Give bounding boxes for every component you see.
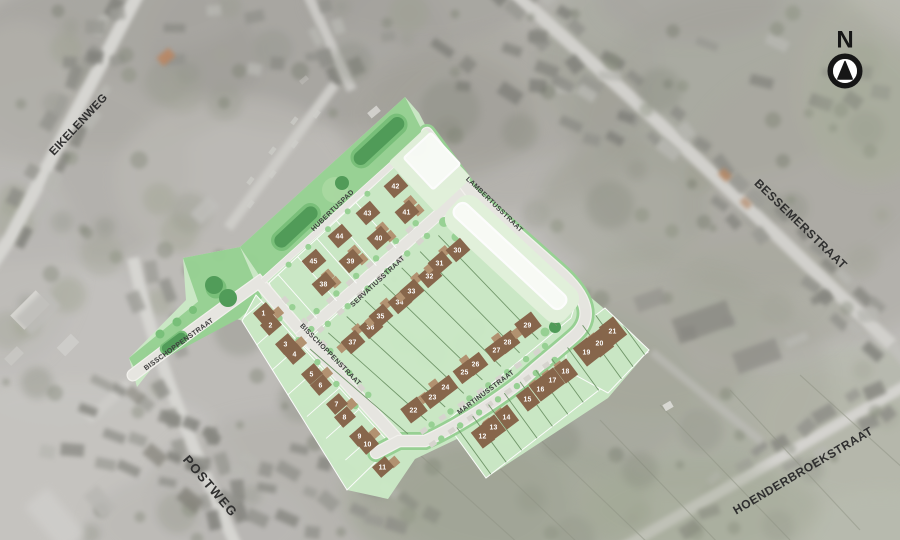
svg-text:24: 24: [441, 385, 449, 392]
svg-text:14: 14: [502, 415, 510, 422]
svg-text:40: 40: [374, 236, 382, 243]
svg-text:29: 29: [523, 323, 531, 330]
svg-text:18: 18: [561, 369, 569, 376]
svg-text:17: 17: [548, 378, 556, 385]
svg-text:22: 22: [409, 408, 417, 415]
svg-text:13: 13: [489, 425, 497, 432]
svg-text:9: 9: [357, 434, 361, 441]
svg-text:20: 20: [595, 341, 603, 348]
svg-text:16: 16: [536, 387, 544, 394]
svg-text:39: 39: [346, 259, 354, 266]
svg-text:41: 41: [402, 210, 410, 217]
svg-text:45: 45: [309, 259, 317, 266]
svg-text:2: 2: [268, 323, 272, 330]
svg-text:30: 30: [453, 248, 461, 255]
svg-text:15: 15: [523, 397, 531, 404]
svg-text:6: 6: [318, 383, 322, 390]
svg-text:21: 21: [608, 329, 616, 336]
svg-text:10: 10: [363, 442, 371, 449]
svg-text:N: N: [836, 27, 853, 54]
svg-text:8: 8: [342, 415, 346, 422]
svg-text:31: 31: [435, 261, 443, 268]
svg-text:5: 5: [309, 372, 313, 379]
svg-text:25: 25: [460, 370, 468, 377]
svg-text:43: 43: [363, 211, 371, 218]
svg-text:32: 32: [425, 274, 433, 281]
svg-text:19: 19: [582, 350, 590, 357]
svg-text:4: 4: [292, 352, 296, 359]
svg-text:44: 44: [335, 234, 343, 241]
svg-text:38: 38: [319, 282, 327, 289]
svg-text:33: 33: [407, 289, 415, 296]
svg-text:35: 35: [376, 314, 384, 321]
svg-text:7: 7: [334, 402, 338, 409]
svg-text:27: 27: [492, 348, 500, 355]
svg-text:11: 11: [379, 465, 387, 472]
svg-text:12: 12: [478, 434, 486, 441]
svg-text:23: 23: [428, 395, 436, 402]
svg-text:3: 3: [283, 342, 287, 349]
svg-text:37: 37: [348, 340, 356, 347]
svg-text:1: 1: [261, 311, 265, 318]
svg-text:42: 42: [391, 184, 399, 191]
